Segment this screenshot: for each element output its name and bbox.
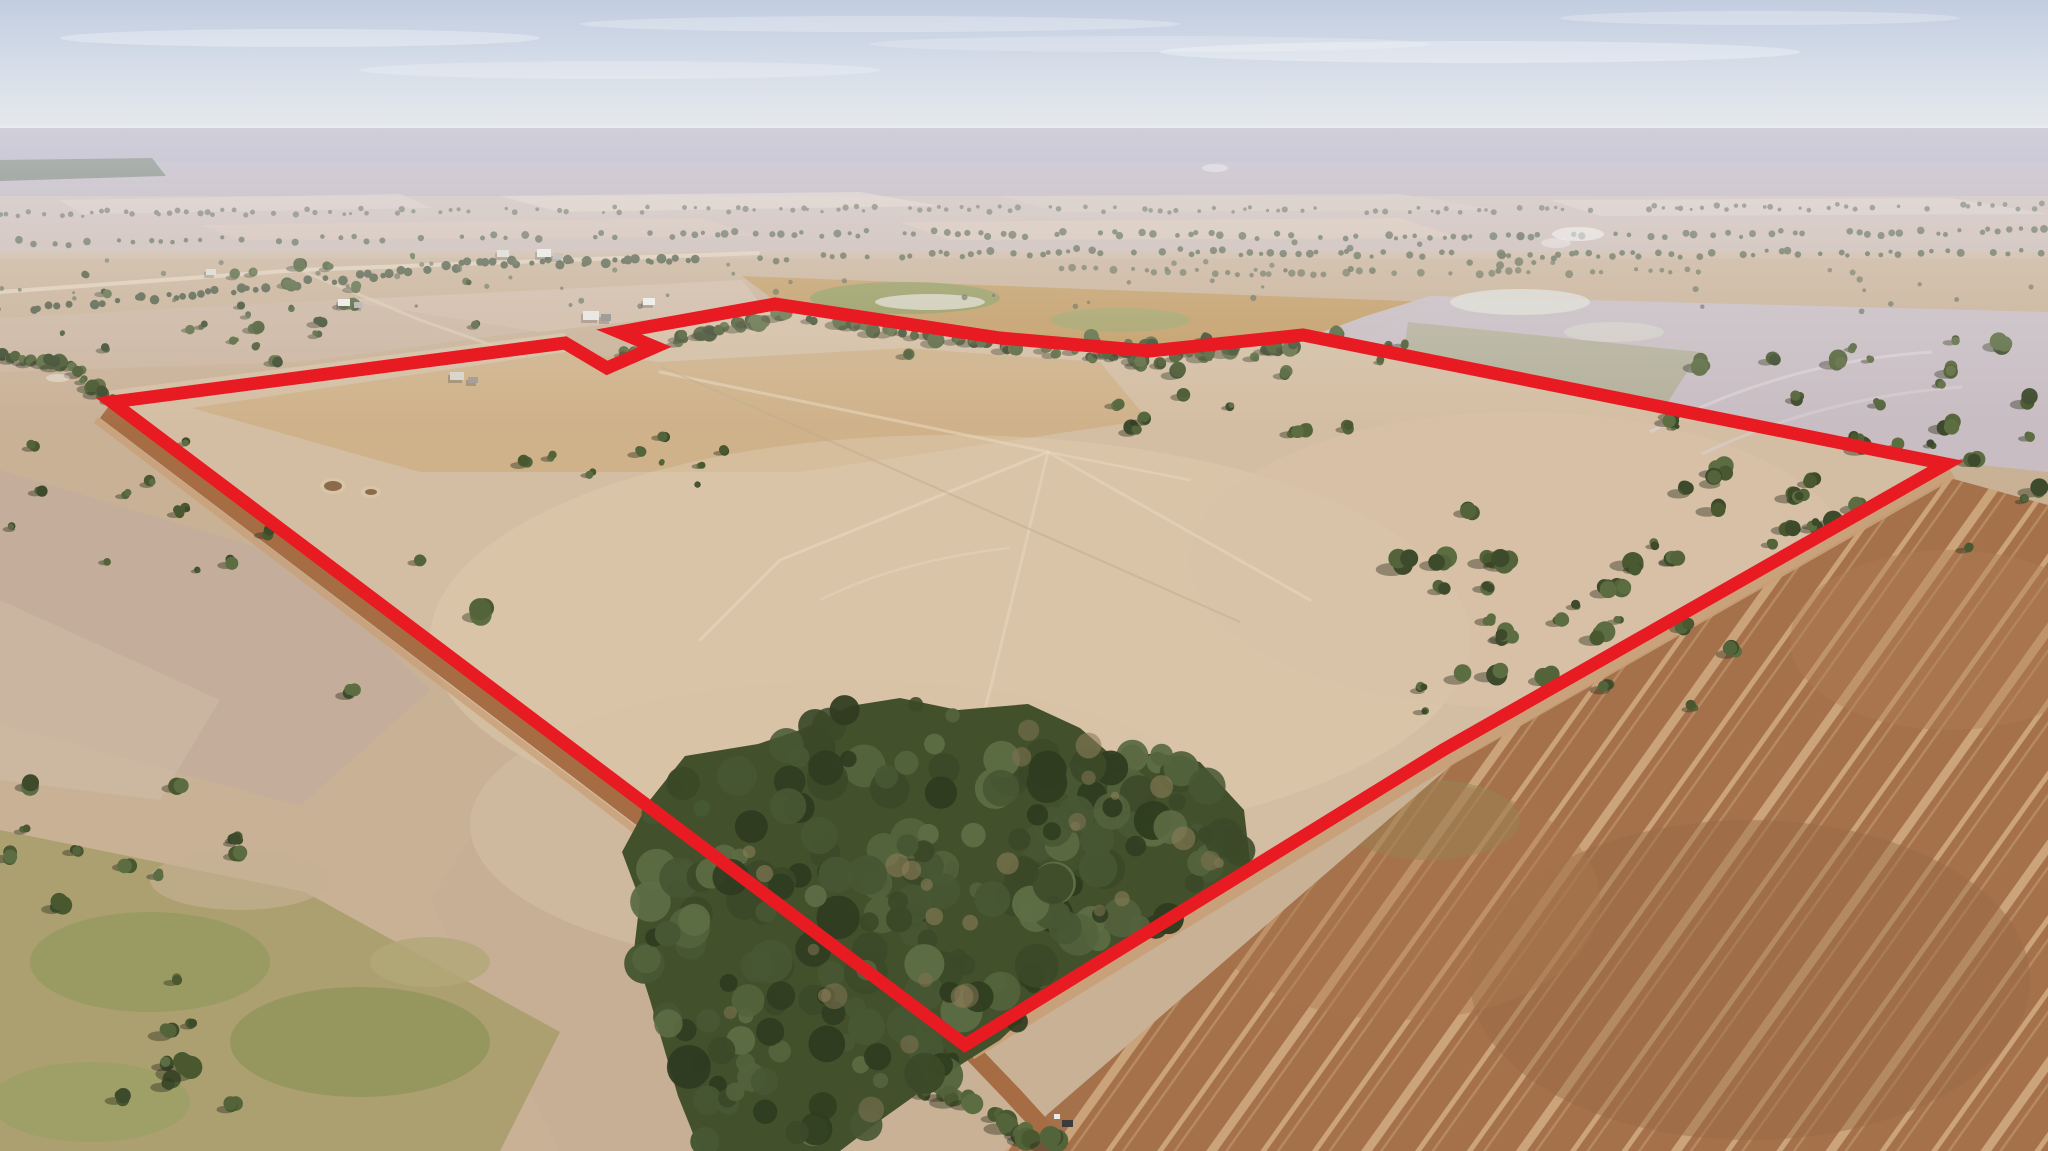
parked-vehicle xyxy=(1062,1120,1073,1127)
parked-vehicle xyxy=(1054,1114,1060,1119)
property-aerial-photo xyxy=(0,0,2048,1151)
aerial-photo-svg xyxy=(0,0,2048,1151)
